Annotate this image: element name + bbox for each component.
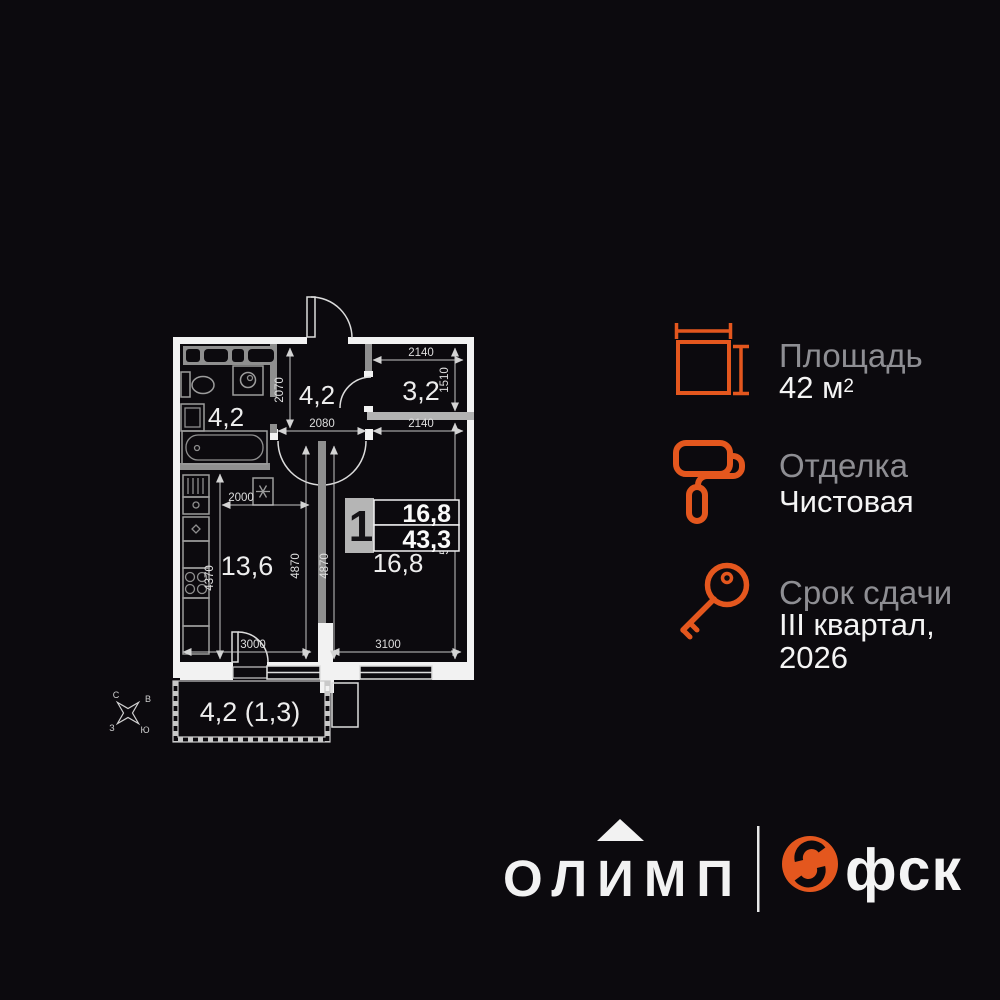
kitchen-sink	[183, 497, 209, 514]
counter-3	[183, 598, 209, 626]
entry-door-leaf	[307, 297, 315, 337]
dish-drainer	[183, 475, 209, 497]
room-label-balcony: 4,2 (1,3)	[200, 697, 301, 727]
area-value-text: 42 м	[779, 370, 843, 405]
floor-plan: 2140 1510 2070 2080 2140 2000 4370 4870 …	[109, 297, 474, 742]
balcony-door-leaf	[232, 632, 238, 662]
compass-north: С	[113, 690, 120, 700]
dim-living-top-width: 2140	[408, 418, 434, 430]
dim-top-width: 2140	[408, 347, 434, 359]
toilet-tank	[181, 372, 190, 397]
counter-4	[183, 626, 209, 654]
area-value: 42 м2	[779, 370, 854, 406]
entry-door-arc	[311, 297, 352, 338]
fsk-logo-text[interactable]: фск	[845, 836, 962, 904]
rooms-count: 1	[349, 502, 373, 551]
counter-1	[183, 517, 209, 541]
dim-hall-height: 2070	[274, 377, 286, 403]
finishing-value: Чистовая	[779, 484, 914, 520]
kitchen-living-wall	[318, 441, 326, 623]
fsk-logo-icon	[782, 836, 838, 892]
paint-roller-icon	[676, 443, 742, 521]
balcony-door-sill	[233, 667, 267, 678]
dim-storage-height: 1510	[439, 367, 451, 393]
total-area-value: 43,3	[402, 526, 451, 554]
living-area-value: 16,8	[402, 500, 451, 528]
deadline-value-line1: III квартал,	[779, 607, 935, 643]
dim-corridor-right: 4870	[319, 553, 331, 579]
key-icon	[683, 566, 747, 638]
dim-kitchen-height: 4370	[204, 565, 216, 591]
storage-door-arc	[340, 377, 371, 408]
dim-bottom-left: 3000	[240, 639, 266, 651]
area-icon	[676, 323, 749, 394]
dim-corridor-left: 4870	[290, 553, 302, 579]
balcony-side-box	[332, 683, 358, 727]
olimp-triangle-icon	[597, 819, 644, 841]
dim-bottom-right: 3100	[375, 639, 401, 651]
counter-2	[183, 541, 209, 568]
room-label-hallway: 4,2	[299, 380, 335, 410]
logo-divider	[757, 826, 760, 912]
compass-icon: С В З Ю	[109, 690, 151, 735]
olimp-logo[interactable]: олимп	[503, 849, 743, 908]
washing-machine	[233, 366, 263, 395]
deadline-value-line2: 2026	[779, 640, 848, 676]
room-label-bathroom: 4,2	[208, 402, 244, 432]
toilet-bowl	[192, 377, 214, 394]
compass-east: В	[145, 694, 151, 704]
dim-hall-width: 2080	[309, 418, 335, 430]
room-label-storage: 3,2	[402, 376, 440, 406]
promo-card: 2140 1510 2070 2080 2140 2000 4370 4870 …	[0, 0, 1000, 1000]
area-value-sup: 2	[843, 376, 854, 397]
compass-west: З	[109, 723, 114, 733]
vent-star	[256, 486, 270, 498]
room-label-kitchen: 13,6	[221, 551, 274, 581]
compass-south: Ю	[140, 725, 149, 735]
apartment-info-box: 1 16,8 43,3	[345, 498, 459, 554]
dim-kitchen-counter: 2000	[228, 492, 254, 504]
finishing-label: Отделка	[779, 447, 908, 485]
